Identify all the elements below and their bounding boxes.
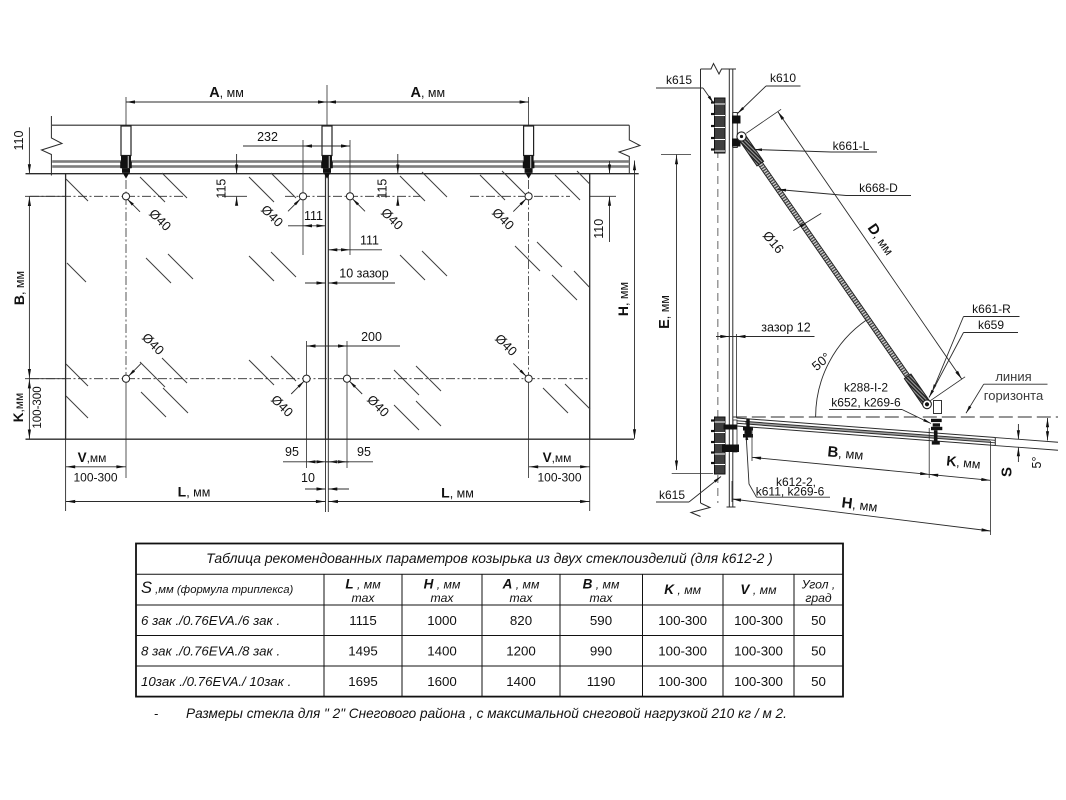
svg-text:линия: линия (995, 369, 1031, 384)
svg-text:100-300: 100-300 (73, 471, 117, 485)
svg-text:990: 990 (590, 644, 612, 659)
svg-text:k615: k615 (659, 488, 685, 502)
svg-text:1200: 1200 (506, 644, 536, 659)
svg-text:k668-D: k668-D (859, 181, 898, 195)
svg-text:1400: 1400 (427, 644, 457, 659)
svg-text:max: max (351, 591, 375, 605)
svg-text:Размеры стекла для " 2" Сн: Размеры стекла для " 2" Снегового района… (186, 706, 787, 721)
svg-text:A, мм: A, мм (209, 85, 244, 101)
svg-text:10зак ./0.76EVA./ 10зак .: 10зак ./0.76EVA./ 10зак . (141, 674, 291, 689)
svg-text:зазор 12: зазор 12 (761, 321, 810, 335)
svg-text:1000: 1000 (427, 613, 457, 628)
svg-text:k661-R: k661-R (972, 302, 1011, 316)
svg-text:110: 110 (592, 219, 606, 239)
svg-text:k610: k610 (770, 71, 796, 85)
svg-text:100-300: 100-300 (658, 674, 707, 689)
svg-text:V,мм: V,мм (78, 450, 107, 465)
svg-text:100-300: 100-300 (658, 613, 707, 628)
svg-text:K,мм: K,мм (11, 393, 26, 423)
svg-text:8 зак ./0.76EVA./8 зак .: 8 зак ./0.76EVA./8 зак . (141, 644, 280, 659)
svg-text:1495: 1495 (348, 644, 378, 659)
svg-text:H, мм: H, мм (615, 282, 631, 316)
svg-text:100-300: 100-300 (537, 471, 581, 485)
svg-text:115: 115 (215, 179, 229, 199)
svg-text:V,мм: V,мм (543, 450, 572, 465)
svg-text:L , мм: L , мм (345, 577, 381, 592)
svg-text:Угол ,: Угол , (801, 578, 836, 592)
svg-text:100-300: 100-300 (734, 613, 783, 628)
svg-text:100-300: 100-300 (734, 644, 783, 659)
svg-text:1600: 1600 (427, 674, 457, 689)
svg-text:100-300: 100-300 (658, 644, 707, 659)
svg-text:-: - (154, 706, 159, 721)
svg-text:590: 590 (590, 613, 612, 628)
svg-text:k611, k269-6: k611, k269-6 (756, 485, 825, 499)
svg-text:V , мм: V , мм (740, 582, 777, 597)
svg-text:232: 232 (257, 130, 278, 144)
svg-text:1695: 1695 (348, 674, 378, 689)
svg-text:A, мм: A, мм (410, 85, 445, 101)
svg-text:k661-L: k661-L (833, 139, 870, 153)
svg-text:A , мм: A , мм (502, 577, 540, 592)
svg-text:50: 50 (811, 613, 826, 628)
svg-text:max: max (430, 591, 454, 605)
svg-text:K , мм: K , мм (664, 582, 701, 597)
svg-text:E, мм: E, мм (657, 295, 673, 329)
svg-text:1400: 1400 (506, 674, 536, 689)
svg-text:1190: 1190 (587, 674, 616, 689)
svg-text:820: 820 (510, 613, 532, 628)
svg-text:L, мм: L, мм (441, 485, 474, 501)
svg-text:B , мм: B , мм (583, 577, 620, 592)
svg-text:k659: k659 (978, 318, 1004, 332)
svg-text:50: 50 (811, 674, 826, 689)
svg-text:max: max (589, 591, 613, 605)
svg-text:горизонта: горизонта (984, 388, 1044, 403)
svg-text:Таблица рекомендованных параме: Таблица рекомендованных параметров козыр… (206, 550, 773, 566)
svg-text:50: 50 (811, 644, 826, 659)
svg-text:B, мм: B, мм (11, 271, 27, 305)
svg-text:1115: 1115 (349, 613, 377, 628)
svg-text:95: 95 (285, 445, 299, 459)
svg-text:k288-I-2: k288-I-2 (844, 381, 888, 395)
svg-text:10 зазор: 10 зазор (339, 267, 388, 281)
svg-text:L, мм: L, мм (178, 484, 211, 500)
svg-text:5°: 5° (1030, 457, 1044, 469)
svg-text:10: 10 (301, 471, 315, 485)
svg-text:111: 111 (360, 234, 379, 248)
svg-text:115: 115 (375, 179, 389, 199)
svg-text:110: 110 (12, 130, 26, 150)
svg-text:111: 111 (304, 209, 323, 223)
svg-text:100-300: 100-300 (734, 674, 783, 689)
svg-text:100-300: 100-300 (32, 386, 44, 428)
svg-text:град: град (805, 591, 832, 605)
svg-text:95: 95 (357, 445, 371, 459)
svg-text:k652, k269-6: k652, k269-6 (831, 396, 901, 410)
svg-text:H , мм: H , мм (424, 577, 461, 592)
svg-text:6 зак ./0.76EVA./6 зак .: 6 зак ./0.76EVA./6 зак . (141, 613, 280, 628)
svg-text:B, мм: B, мм (827, 443, 864, 463)
svg-text:max: max (509, 591, 533, 605)
svg-text:k615: k615 (666, 73, 692, 87)
svg-text:S: S (999, 467, 1016, 477)
svg-text:200: 200 (361, 330, 382, 344)
